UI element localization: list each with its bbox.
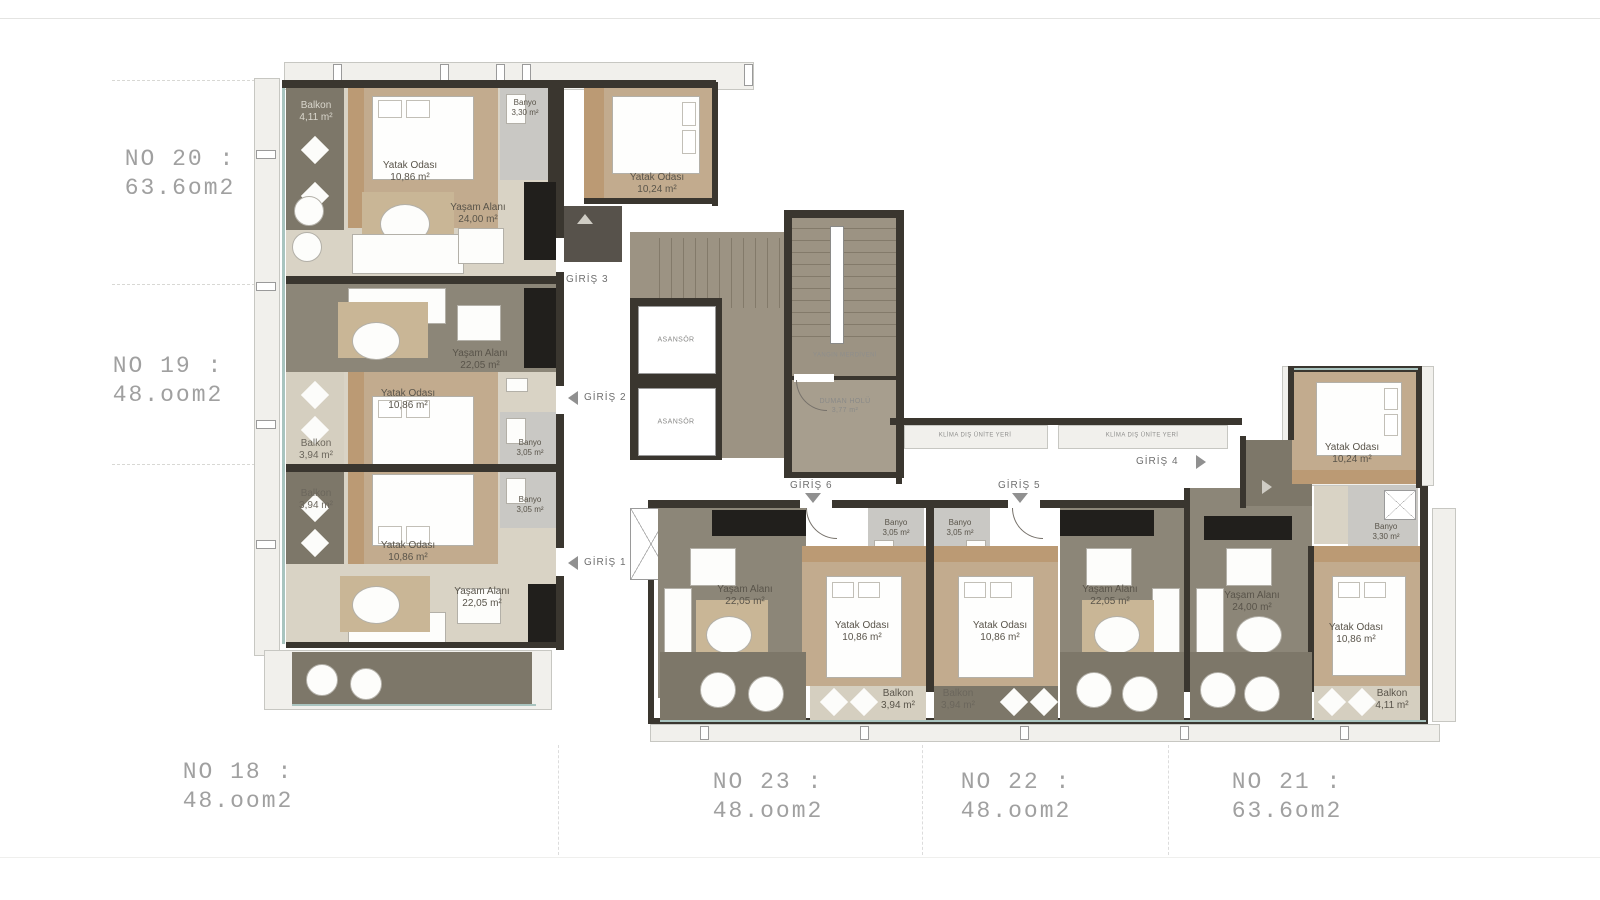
room-label: Yaşam Alanı22,05 m² [454, 586, 509, 610]
lounge-chair [1244, 676, 1280, 712]
pillow [832, 582, 854, 598]
entrance-label-giris1: GİRİŞ 1 [584, 557, 627, 568]
room-label: Yaşam Alanı22,05 m² [717, 584, 772, 608]
ac-niche-label: KLİMA DIŞ ÜNİTE YERİ [1106, 433, 1179, 440]
wall [286, 276, 562, 284]
lounge-chair [700, 672, 736, 708]
entrance-label-giris2: GİRİŞ 2 [584, 392, 627, 403]
dimension-tick [744, 64, 753, 86]
room-label: Banyo3,05 m² [946, 518, 973, 538]
unit-label-no20: NO 20 :63.6om2 [125, 145, 236, 203]
grid-dash [1168, 745, 1169, 855]
dimension-tick [256, 150, 276, 159]
lounge-chair [292, 232, 322, 262]
wall [896, 418, 902, 484]
pillow [406, 100, 430, 118]
wardrobe-band [802, 546, 926, 562]
entrance-arrow-icon [568, 391, 578, 405]
dining-table [457, 305, 501, 341]
unit-label-no23: NO 23 :48.oom2 [713, 768, 824, 826]
coffee-table [1236, 616, 1282, 654]
window-band [660, 720, 1426, 722]
dining-table [458, 228, 504, 264]
dimension-tick [1020, 726, 1029, 740]
closet [506, 378, 528, 392]
stair-treads [792, 218, 896, 348]
elevator-label: ASANSÖR [657, 336, 694, 345]
room-label: Banyo3,05 m² [882, 518, 909, 538]
wardrobe-band [934, 546, 1058, 562]
unit-label-no19: NO 19 :48.oom2 [113, 352, 224, 410]
pillow [858, 582, 880, 598]
room-label: Yatak Odası10,86 m² [381, 388, 435, 412]
lounge-chair [748, 676, 784, 712]
unit-label-no22: NO 22 :48.oom2 [961, 768, 1072, 826]
dining-table [1086, 548, 1132, 586]
dimension-tick [256, 420, 276, 429]
dimension-tick [256, 282, 276, 291]
room-label: Yatak Odası10,86 m² [1329, 622, 1383, 646]
wall [282, 80, 716, 88]
room-label: Yaşam Alanı24,00 m² [1224, 590, 1279, 614]
wall [926, 502, 934, 692]
unit-label-no21: NO 21 :63.6om2 [1232, 768, 1343, 826]
room-label: Balkon4,11 m² [299, 100, 332, 124]
wall [1420, 486, 1428, 722]
window-band [282, 88, 285, 644]
room-label: Yaşam Alanı22,05 m² [452, 348, 507, 372]
wall [648, 500, 1188, 508]
entrance-arrow-icon [568, 556, 578, 570]
pillow [682, 102, 696, 126]
pillow [1364, 582, 1386, 598]
grid-dash [558, 745, 559, 855]
ac-niche-label: KLİMA DIŞ ÜNİTE YERİ [939, 433, 1012, 440]
coffee-table [352, 586, 400, 624]
entry-arrow-icon [577, 214, 593, 224]
coffee-table [352, 322, 400, 360]
room-label: Yatak Odası10,24 m² [1325, 442, 1379, 466]
lounge-chair [294, 196, 324, 226]
hall-no21 [1314, 486, 1348, 544]
dimension-tick [1180, 726, 1189, 740]
entrance-arrow-icon [805, 493, 821, 503]
entrance-label-giris6: GİRİŞ 6 [790, 480, 833, 491]
room-label: Yatak Odası10,24 m² [630, 172, 684, 196]
lounge-chair [306, 664, 338, 696]
wardrobe-band [1314, 546, 1420, 562]
entrance-label-giris4: GİRİŞ 4 [1136, 456, 1179, 467]
wardrobe-band [348, 472, 364, 564]
smoke-lobby-label: DUMAN HOLÜ3,77 m² [819, 397, 870, 415]
room-label: Banyo3,05 m² [516, 438, 543, 458]
door-gap [556, 238, 564, 272]
lounge-chair [1076, 672, 1112, 708]
lounge-chair [1200, 672, 1236, 708]
dining-table [1226, 548, 1272, 586]
dimension-tick [256, 540, 276, 549]
room-label: Balkon3,94 m² [299, 488, 333, 512]
wall [1240, 436, 1246, 508]
kitchen-counter [1060, 510, 1154, 536]
grid-dash [112, 284, 260, 285]
stair-stringer [830, 226, 844, 344]
room-label: Balkon3,94 m² [299, 438, 333, 462]
page-bottom-line [0, 857, 1600, 858]
kitchen-counter [712, 510, 806, 536]
terrace-outline-left [254, 78, 280, 656]
terrace-outline-bottom [650, 724, 1440, 742]
kitchen-counter [524, 288, 560, 368]
wall [584, 198, 718, 204]
wall [286, 642, 562, 648]
pillow [964, 582, 986, 598]
entry-vestibule [564, 206, 622, 262]
room-label: Yaşam Alanı22,05 m² [1082, 584, 1137, 608]
pillow [1384, 388, 1398, 410]
window-band [1294, 368, 1418, 370]
kitchen-counter [524, 182, 560, 260]
entrance-label-giris3: GİRİŞ 3 [566, 274, 609, 285]
lounge-chair [350, 668, 382, 700]
room-label: Banyo3,30 m² [511, 98, 538, 118]
room-label: Yatak Odası10,86 m² [835, 620, 889, 644]
wall [890, 418, 1242, 425]
pillow [1384, 414, 1398, 436]
fire-stair-label: YANGIN MERDİVENİ [813, 353, 877, 360]
coffee-table [706, 616, 752, 654]
grid-dash [112, 80, 260, 81]
room-label: Banyo3,05 m² [516, 495, 543, 515]
door-gap [556, 386, 564, 414]
entrance-arrow-icon [1012, 493, 1028, 503]
window-band [292, 704, 536, 706]
coffee-table [1094, 616, 1140, 654]
pillow [682, 130, 696, 154]
room-label: Yaşam Alanı24,00 m² [450, 202, 505, 226]
room-label: Yatak Odası10,86 m² [383, 160, 437, 184]
room-label: Balkon3,94 m² [941, 688, 975, 712]
page-top-line [0, 18, 1600, 19]
door-swing [1012, 508, 1043, 539]
entrance-label-giris5: GİRİŞ 5 [998, 480, 1041, 491]
sofa [352, 234, 464, 274]
room-label: Yatak Odası10,86 m² [381, 540, 435, 564]
wall [1288, 370, 1294, 440]
dimension-tick [700, 726, 709, 740]
grid-dash [922, 745, 923, 855]
pillow [990, 582, 1012, 598]
pillow [1338, 582, 1360, 598]
room-label: Yatak Odası10,86 m² [973, 620, 1027, 644]
wardrobe-band [348, 372, 364, 466]
terrace-outline-right [1432, 508, 1456, 722]
wall [286, 464, 562, 472]
wardrobe-band [1292, 470, 1418, 484]
wall [1416, 366, 1422, 488]
lounge-chair [1122, 676, 1158, 712]
room-label: Balkon3,94 m² [881, 688, 915, 712]
wall [712, 82, 718, 206]
dimension-tick [860, 726, 869, 740]
door-gap [556, 548, 564, 576]
room-label: Balkon4,11 m² [1375, 688, 1408, 712]
grid-dash [112, 464, 260, 465]
dimension-tick [1340, 726, 1349, 740]
elevator-label: ASANSÖR [657, 418, 694, 427]
wardrobe-band [584, 86, 604, 200]
entrance-arrow-icon [1196, 455, 1206, 469]
door-swing [806, 508, 837, 539]
unit-label-no18: NO 18 :48.oom2 [183, 758, 294, 816]
room-label: Banyo3,30 m² [1372, 522, 1399, 542]
pillow [378, 100, 402, 118]
floor-plan: Balkon4,11 m² Yatak Odası10,86 m² Banyo3… [0, 0, 1600, 900]
shower [1384, 490, 1416, 520]
kitchen-counter [1204, 516, 1292, 540]
entry-arrow-icon [1262, 480, 1272, 494]
dining-table [690, 548, 736, 586]
